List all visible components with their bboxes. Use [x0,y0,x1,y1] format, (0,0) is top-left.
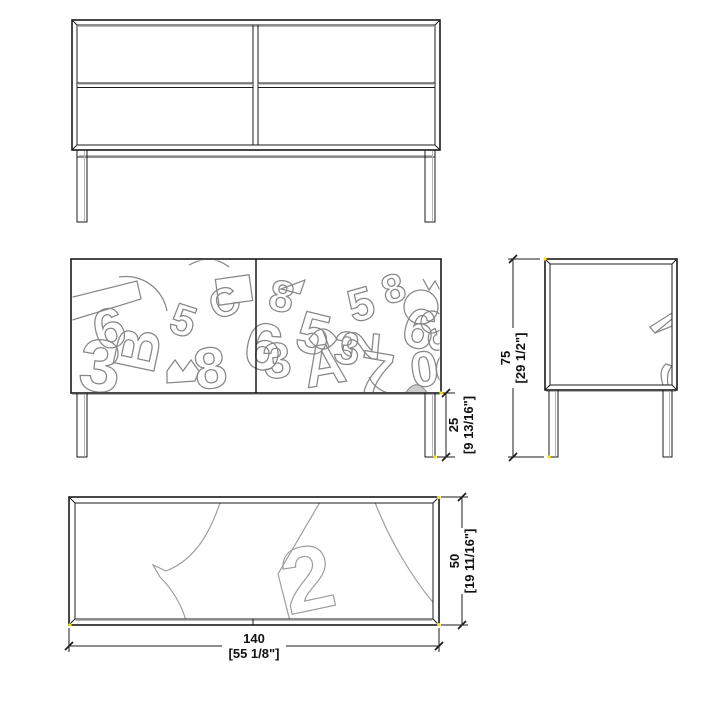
side-legs [549,390,672,457]
carcass-outer-frame [72,20,440,150]
front-legs [77,393,435,457]
dim-total-height-value: 75 [498,351,513,365]
plan-doodle-pattern: 2 [153,497,436,635]
snap-marker [433,455,436,458]
miter-joints [69,497,439,625]
snap-marker [68,623,71,626]
doodle-glyph: 8 [265,271,298,324]
left-leg [77,393,87,457]
dimension-total-height: 75 [29 1/2"] [498,255,551,461]
right-leg [425,393,435,457]
dim-width-imperial: [55 1/8"] [229,646,280,661]
snap-marker [437,623,440,626]
plan-outer-frame [69,497,439,625]
snap-marker [439,391,442,394]
view-front-elevation-doors: 63B586C835A35726083 [65,259,476,461]
plan-glyph-layer: 2 [272,524,343,634]
side-outer-frame [545,259,677,390]
back-leg [663,390,672,457]
drawing-canvas: 63B586C835A35726083 [0,0,709,716]
snap-marker [543,257,546,260]
front-leg [549,390,558,457]
view-plan-top: 2 50 [19 11/16"] 140 [55 1/8 [65,493,477,661]
right-leg [425,150,435,222]
doodle-glyph: 8 [376,265,411,314]
miter-joints [545,259,677,390]
front-doodle-pattern: 63B586C835A35726083 [65,259,470,411]
dim-depth-value: 50 [447,554,462,568]
dim-depth-imperial: [19 11/16"] [462,529,477,594]
carcass-inner-frame [77,25,435,145]
shelf-left [77,83,253,88]
doodle-glyph: 2 [331,328,391,362]
dim-leg-height-imperial: [9 13/16"] [461,396,476,454]
dimension-depth: 50 [19 11/16"] [437,493,477,629]
leg-frame [77,150,435,222]
dim-width-value: 140 [243,631,265,646]
view-side-elevation: 75 [29 1/2"] [498,255,677,461]
snap-marker [547,455,550,458]
doodle-glyph: 2 [272,524,343,634]
plan-inner-frame [75,503,433,619]
dimension-leg-height: 25 [9 13/16"] [433,389,476,461]
shelf-right [258,83,435,88]
left-leg [77,150,87,222]
center-divider [253,25,258,145]
dim-total-height-imperial: [29 1/2"] [513,333,528,384]
doodle-glyph: C [202,277,247,329]
dimension-width: 140 [55 1/8"] [65,623,443,661]
doodle-glyph: 3 [260,331,294,390]
snap-marker [437,496,440,499]
dim-leg-height-value: 25 [446,418,461,432]
side-doodle-fragments [650,313,672,385]
view-front-elevation-open [72,20,440,222]
technical-drawing-svg: 63B586C835A35726083 [0,0,709,716]
miter-joints [72,20,440,150]
